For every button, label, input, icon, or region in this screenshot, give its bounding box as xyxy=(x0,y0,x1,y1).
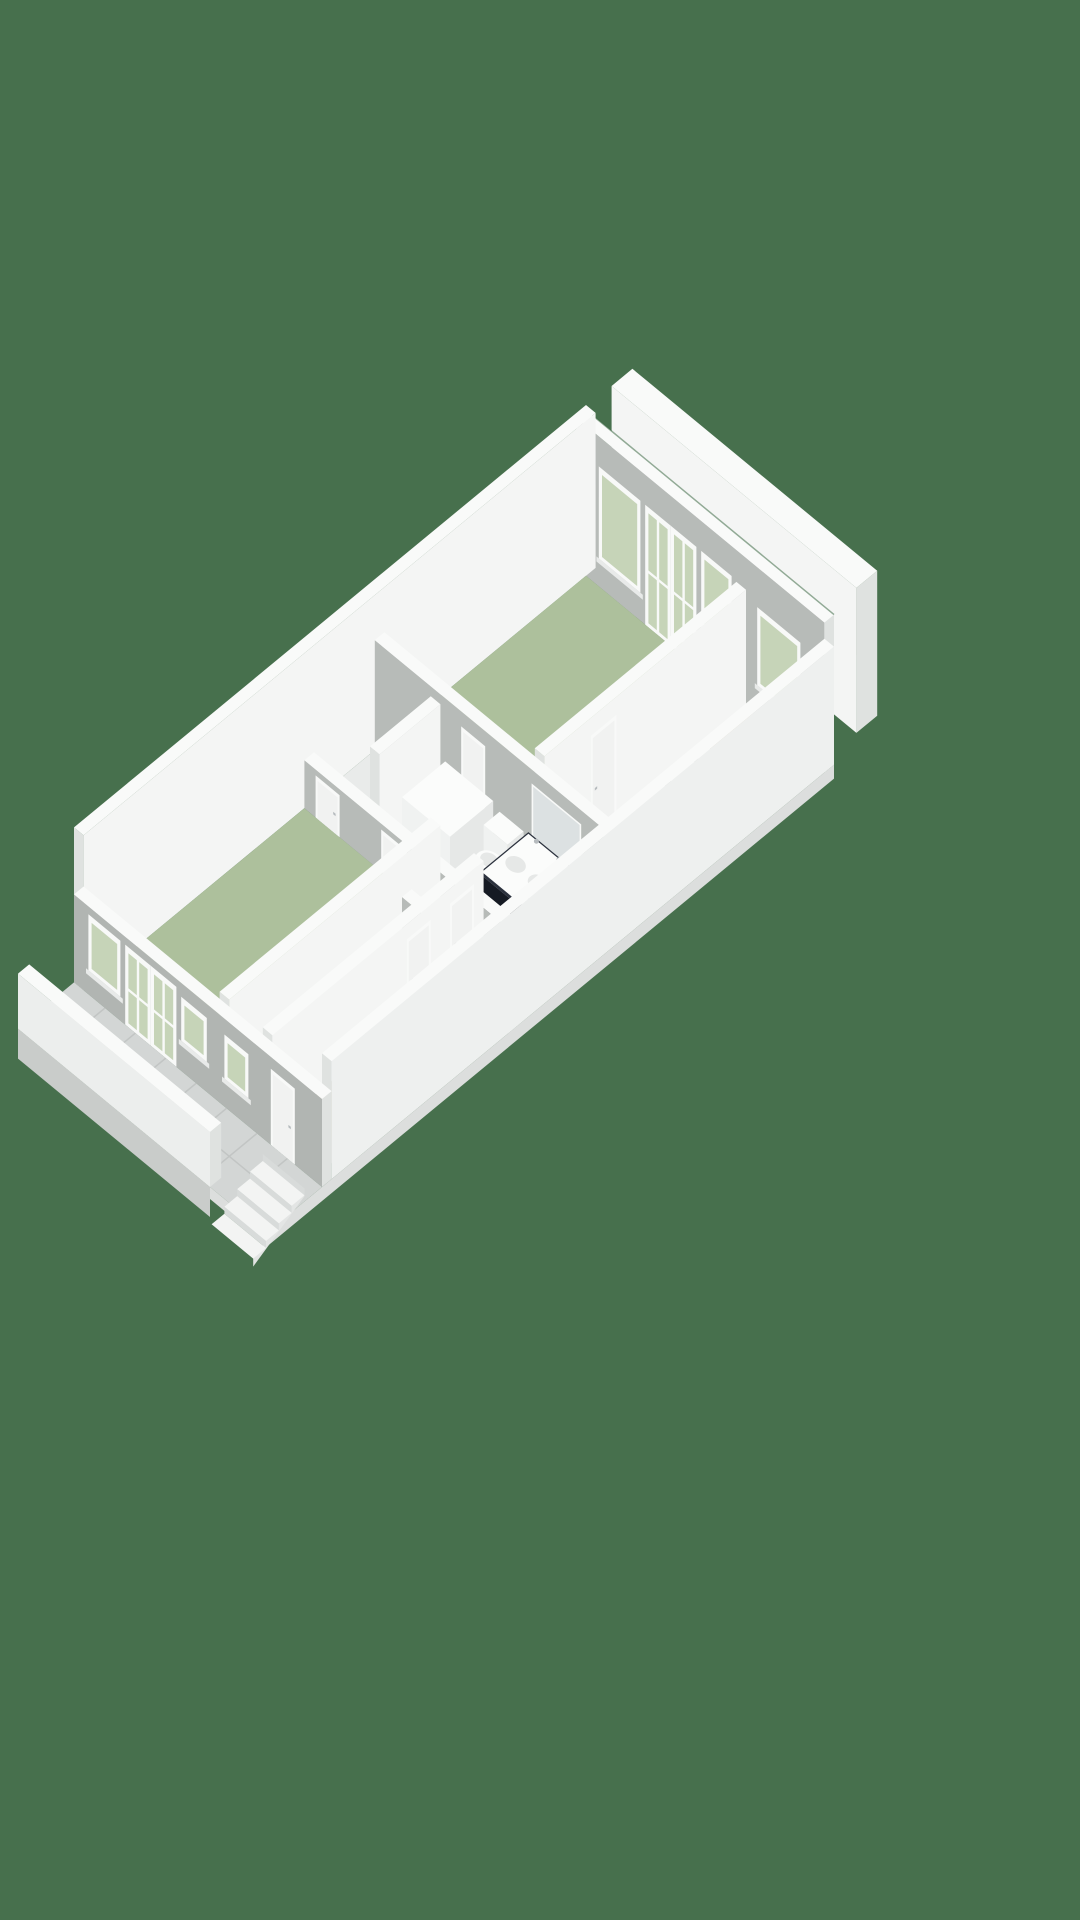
exterior-wall-front-face xyxy=(322,1091,332,1187)
floor-plan-3d xyxy=(0,0,1080,1920)
floor-plan-viewport xyxy=(0,0,1080,1920)
bedroom-french-door-mullion xyxy=(657,518,659,634)
balcony-parapet-face xyxy=(210,1123,221,1187)
neighbor-party-wall-face xyxy=(856,571,877,733)
faucet xyxy=(534,839,539,844)
